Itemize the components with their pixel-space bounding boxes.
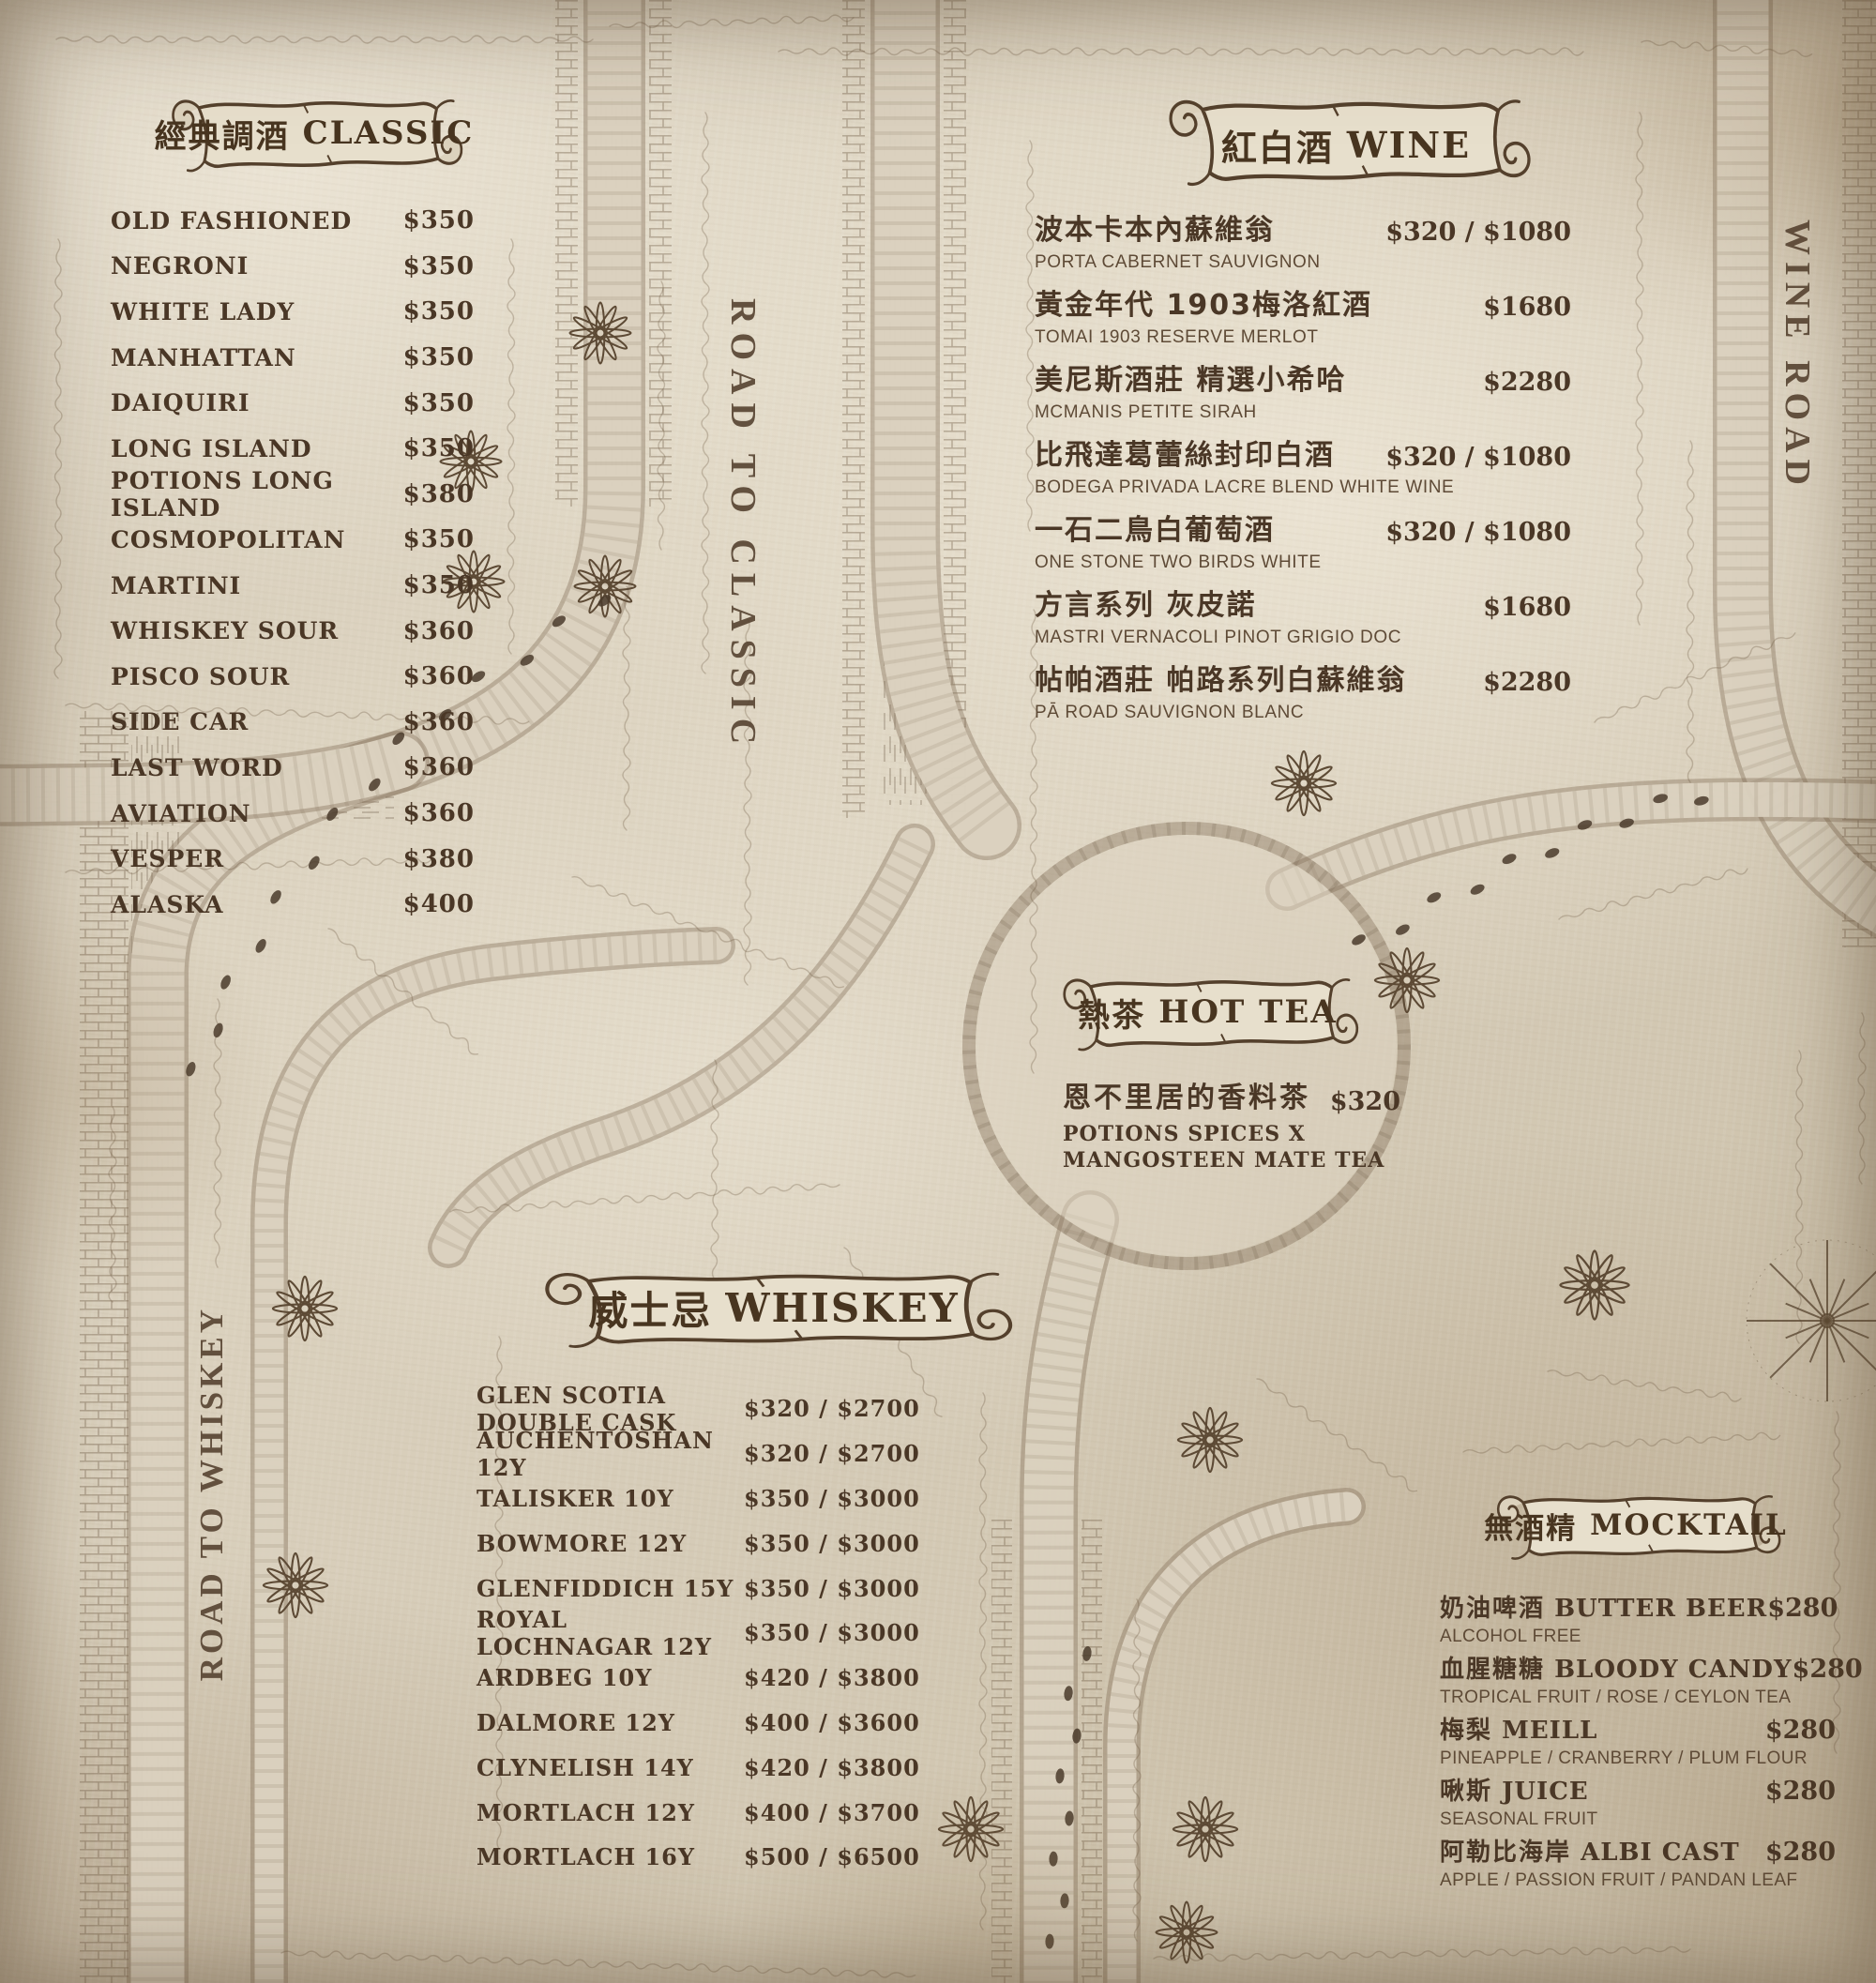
item-price: $350 / $3000 xyxy=(744,1530,936,1557)
item-name: WHISKEY SOUR xyxy=(111,617,339,644)
item-name: ARDBEG 10Y xyxy=(477,1664,744,1691)
item-name: DALMORE 12Y xyxy=(477,1709,744,1736)
compass-rose xyxy=(1747,1240,1876,1401)
menu-item-row: MARTINI$350 xyxy=(111,563,475,609)
wine-item: 波本卡本內蘇維翁PORTA CABERNET SAUVIGNON$320 / $… xyxy=(1035,213,1571,288)
item-name-en: BODEGA PRIVADA LACRE BLEND WHITE WINE xyxy=(1035,477,1571,499)
menu-item-row: AVIATION$360 xyxy=(111,791,475,837)
item-name: GLENFIDDICH 15Y xyxy=(477,1575,744,1602)
item-name-zh: 血腥糖糖 xyxy=(1440,1656,1545,1684)
road-label-whiskey: ROAD TO WHISKEY xyxy=(193,1306,231,1681)
item-price: $280 xyxy=(1765,1837,1836,1869)
menu-item-row: GLEN SCOTIA DOUBLE CASK$320 / $2700 xyxy=(477,1386,936,1431)
item-price: $400 / $3600 xyxy=(744,1709,936,1736)
item-price: $320 / $1080 xyxy=(1385,218,1571,247)
wine-item: 一石二鳥白葡萄酒ONE STONE TWO BIRDS WHITE$320 / … xyxy=(1035,513,1571,588)
mocktail-title-en: MOCKTAIL xyxy=(1590,1508,1788,1542)
item-price: $350 xyxy=(403,434,475,462)
item-name: MARTINI xyxy=(111,572,241,599)
mocktail-section: 奶油啤酒 BUTTER BEER$280 ALCOHOL FREE 血腥糖糖 B… xyxy=(1440,1593,1836,1898)
item-name: COSMOPOLITAN xyxy=(111,526,346,553)
item-name-en: ONE STONE TWO BIRDS WHITE xyxy=(1035,552,1571,574)
wine-item: 黃金年代 1903梅洛紅酒TOMAI 1903 RESERVE MERLOT$1… xyxy=(1035,288,1571,363)
hot-tea-title-en: HOT TEA xyxy=(1158,993,1337,1031)
classic-banner-title: 經典調酒 CLASSIC xyxy=(159,83,469,184)
menu-item-row: CLYNELISH 14Y$420 / $3800 xyxy=(477,1745,936,1790)
item-name-en: BUTTER BEER xyxy=(1554,1595,1767,1623)
mocktail-item: 奶油啤酒 BUTTER BEER$280 ALCOHOL FREE xyxy=(1440,1593,1836,1654)
item-name-zh: 梅梨 xyxy=(1440,1717,1492,1745)
mocktail-banner-title: 無酒精 MOCKTAIL xyxy=(1485,1480,1787,1570)
item-name: MANHATTAN xyxy=(111,344,296,371)
item-price: $320 / $1080 xyxy=(1385,443,1571,472)
mocktail-title-zh: 無酒精 xyxy=(1484,1505,1577,1547)
item-price: $350 / $3000 xyxy=(744,1575,936,1602)
item-price: $280 xyxy=(1765,1776,1836,1808)
item-name: TALISKER 10Y xyxy=(477,1485,744,1512)
classic-title-en: CLASSIC xyxy=(303,114,475,152)
item-price: $2280 xyxy=(1483,368,1571,397)
whiskey-section: GLEN SCOTIA DOUBLE CASK$320 / $2700 AUCH… xyxy=(477,1386,936,1880)
item-price: $320 / $2700 xyxy=(744,1440,936,1467)
menu-item-row: LONG ISLAND$350 xyxy=(111,426,475,472)
road-label-classic: ROAD TO CLASSIC xyxy=(722,298,764,752)
item-price: $360 xyxy=(403,617,475,645)
item-price: $500 / $6500 xyxy=(744,1843,936,1870)
item-name: LAST WORD xyxy=(111,754,283,781)
menu-item-row: VESPER$380 xyxy=(111,836,475,882)
item-price: $400 xyxy=(403,890,475,918)
item-name-en: TOMAI 1903 RESERVE MERLOT xyxy=(1035,326,1571,349)
item-name-en: BLOODY CANDY xyxy=(1554,1656,1792,1684)
menu-item-row: NEGRONI$350 xyxy=(111,244,475,290)
item-name-zh: 阿勒比海岸 xyxy=(1440,1839,1571,1867)
item-name: CLYNELISH 14Y xyxy=(477,1754,744,1781)
item-price: $2280 xyxy=(1483,668,1571,697)
wine-item: 美尼斯酒莊 精選小希哈MCMANIS PETITE SIRAH$2280 xyxy=(1035,363,1571,438)
item-price: $350 xyxy=(403,252,475,280)
menu-item-row: DALMORE 12Y$400 / $3600 xyxy=(477,1701,936,1746)
item-price: $320 / $2700 xyxy=(744,1395,936,1422)
item-name: ROYAL LOCHNAGAR 12Y xyxy=(477,1606,744,1660)
mocktail-item: 阿勒比海岸 ALBI CAST$280 APPLE / PASSION FRUI… xyxy=(1440,1837,1836,1898)
item-description: APPLE / PASSION FRUIT / PANDAN LEAF xyxy=(1440,1869,1836,1892)
mocktail-item: 血腥糖糖 BLOODY CANDY$280 TROPICAL FRUIT / R… xyxy=(1440,1654,1836,1715)
item-price: $350 xyxy=(403,297,475,325)
item-name: VESPER xyxy=(111,845,224,872)
item-name: AUCHENTOSHAN 12Y xyxy=(477,1427,744,1481)
item-name: LONG ISLAND xyxy=(111,435,312,462)
item-name: SIDE CAR xyxy=(111,708,249,735)
wine-section: 波本卡本內蘇維翁PORTA CABERNET SAUVIGNON$320 / $… xyxy=(1035,213,1571,738)
item-name-en: POTIONS SPICES X MANGOSTEEN MATE TEA xyxy=(1063,1121,1400,1173)
item-price: $1680 xyxy=(1483,293,1571,322)
item-price: $420 / $3800 xyxy=(744,1754,936,1781)
item-name: ALASKA xyxy=(111,891,224,918)
classic-section: OLD FASHIONED$350 NEGRONI$350 WHITE LADY… xyxy=(111,198,475,928)
item-price: $350 xyxy=(403,525,475,553)
item-name-en: ALBI CAST xyxy=(1581,1839,1740,1867)
item-name: MORTLACH 12Y xyxy=(477,1799,744,1826)
item-name-zh: 奶油啤酒 xyxy=(1440,1595,1545,1623)
wine-title-zh: 紅白酒 xyxy=(1221,119,1334,171)
whiskey-title-zh: 威士忌 xyxy=(588,1279,712,1337)
item-price: $380 xyxy=(403,845,475,873)
classic-title-zh: 經典調酒 xyxy=(155,111,290,157)
item-price: $280 xyxy=(1765,1715,1836,1747)
item-description: TROPICAL FRUIT / ROSE / CEYLON TEA xyxy=(1440,1687,1836,1709)
wine-title-en: WINE xyxy=(1347,124,1471,166)
item-name-en: PĀ ROAD SAUVIGNON BLANC xyxy=(1035,702,1571,724)
wine-item: 比飛達葛蕾絲封印白酒BODEGA PRIVADA LACRE BLEND WHI… xyxy=(1035,438,1571,513)
menu-item-row: PISCO SOUR$360 xyxy=(111,654,475,700)
menu-item-row: MORTLACH 12Y$400 / $3700 xyxy=(477,1790,936,1835)
item-description: ALCOHOL FREE xyxy=(1440,1626,1836,1648)
item-price: $400 / $3700 xyxy=(744,1799,936,1826)
item-price: $380 xyxy=(403,480,475,508)
menu-item-row: DAIQUIRI$350 xyxy=(111,380,475,426)
item-name: DAIQUIRI xyxy=(111,389,250,416)
wine-banner: 紅白酒 WINE xyxy=(1154,80,1538,200)
item-price: $360 xyxy=(403,799,475,827)
item-description: SEASONAL FRUIT xyxy=(1440,1809,1836,1831)
item-price: $360 xyxy=(403,753,475,781)
item-name: BOWMORE 12Y xyxy=(477,1530,744,1557)
item-price: $350 xyxy=(403,343,475,371)
menu-item-row: TALISKER 10Y$350 / $3000 xyxy=(477,1476,936,1521)
item-price: $350 / $3000 xyxy=(744,1619,936,1646)
item-name-en: JUICE xyxy=(1502,1778,1589,1806)
menu-item-row: LAST WORD$360 xyxy=(111,745,475,791)
menu-item-row: OLD FASHIONED$350 xyxy=(111,198,475,244)
wine-item: 帖帕酒莊 帕路系列白蘇維翁PĀ ROAD SAUVIGNON BLANC$228… xyxy=(1035,663,1571,738)
item-name-en: PORTA CABERNET SAUVIGNON xyxy=(1035,251,1571,274)
item-name: OLD FASHIONED xyxy=(111,207,352,235)
menu-item-row: POTIONS LONG ISLAND$380 xyxy=(111,472,475,518)
item-price: $350 xyxy=(403,389,475,417)
menu-item-row: BOWMORE 12Y$350 / $3000 xyxy=(477,1521,936,1566)
item-price: $350 xyxy=(403,571,475,599)
item-price: $320 xyxy=(1330,1087,1400,1116)
hot-tea-banner: 熱茶 HOT TEA xyxy=(1051,961,1365,1063)
hot-tea-title-zh: 熱茶 xyxy=(1078,990,1145,1036)
menu-item-row: AUCHENTOSHAN 12Y$320 / $2700 xyxy=(477,1431,936,1476)
item-name-zh: 啾斯 xyxy=(1440,1778,1492,1806)
menu-item-row: ALASKA$400 xyxy=(111,882,475,928)
item-price: $320 / $1080 xyxy=(1385,518,1571,547)
item-name: POTIONS LONG ISLAND xyxy=(111,467,403,522)
item-description: PINEAPPLE / CRANBERRY / PLUM FLOUR xyxy=(1440,1748,1836,1770)
item-name-en: MCMANIS PETITE SIRAH xyxy=(1035,401,1571,424)
menu-map-page: 經典調酒 CLASSIC 紅白酒 WINE 熱茶 HOT TEA 威士忌 WHI… xyxy=(0,0,1876,1983)
whiskey-title-en: WHISKEY xyxy=(725,1285,959,1331)
wine-item: 方言系列 灰皮諾MASTRI VERNACOLI PINOT GRIGIO DO… xyxy=(1035,588,1571,663)
mocktail-item: 啾斯 JUICE$280 SEASONAL FRUIT xyxy=(1440,1776,1836,1837)
whiskey-banner-title: 威士忌 WHISKEY xyxy=(525,1255,1022,1360)
menu-item-row: WHISKEY SOUR$360 xyxy=(111,608,475,654)
item-name: AVIATION xyxy=(111,800,251,827)
item-name: WHITE LADY xyxy=(111,298,295,325)
menu-item-row: SIDE CAR$360 xyxy=(111,700,475,746)
menu-item-row: MORTLACH 16Y$500 / $6500 xyxy=(477,1835,936,1880)
menu-item-row: ROYAL LOCHNAGAR 12Y$350 / $3000 xyxy=(477,1611,936,1656)
hot-tea-banner-title: 熱茶 HOT TEA xyxy=(1051,961,1365,1063)
item-price: $360 xyxy=(403,662,475,690)
item-price: $360 xyxy=(403,708,475,736)
hot-tea-section: 恩不里居的香料茶 POTIONS SPICES X MANGOSTEEN MAT… xyxy=(1063,1081,1400,1173)
item-name-en: MEILL xyxy=(1502,1717,1597,1745)
item-name: MORTLACH 16Y xyxy=(477,1843,744,1870)
item-price: $420 / $3800 xyxy=(744,1664,936,1691)
menu-item-row: ARDBEG 10Y$420 / $3800 xyxy=(477,1656,936,1701)
menu-item-row: MANHATTAN$350 xyxy=(111,335,475,381)
classic-banner: 經典調酒 CLASSIC xyxy=(159,83,469,184)
menu-item-row: GLENFIDDICH 15Y$350 / $3000 xyxy=(477,1566,936,1611)
item-price: $1680 xyxy=(1483,593,1571,622)
wine-banner-title: 紅白酒 WINE xyxy=(1154,80,1538,200)
road-label-wine: WINE ROAD xyxy=(1777,219,1818,492)
item-name-en: MASTRI VERNACOLI PINOT GRIGIO DOC xyxy=(1035,627,1571,649)
mocktail-banner: 無酒精 MOCKTAIL xyxy=(1485,1480,1787,1570)
item-name: NEGRONI xyxy=(111,252,249,280)
item-price: $280 xyxy=(1767,1593,1838,1625)
item-price: $350 / $3000 xyxy=(744,1485,936,1512)
item-price: $280 xyxy=(1793,1654,1863,1686)
menu-item-row: WHITE LADY$350 xyxy=(111,289,475,335)
whiskey-banner: 威士忌 WHISKEY xyxy=(525,1255,1022,1360)
item-price: $350 xyxy=(403,206,475,235)
item-name: PISCO SOUR xyxy=(111,663,290,690)
menu-item-row: COSMOPOLITAN$350 xyxy=(111,517,475,563)
mocktail-item: 梅梨 MEILL$280 PINEAPPLE / CRANBERRY / PLU… xyxy=(1440,1715,1836,1776)
